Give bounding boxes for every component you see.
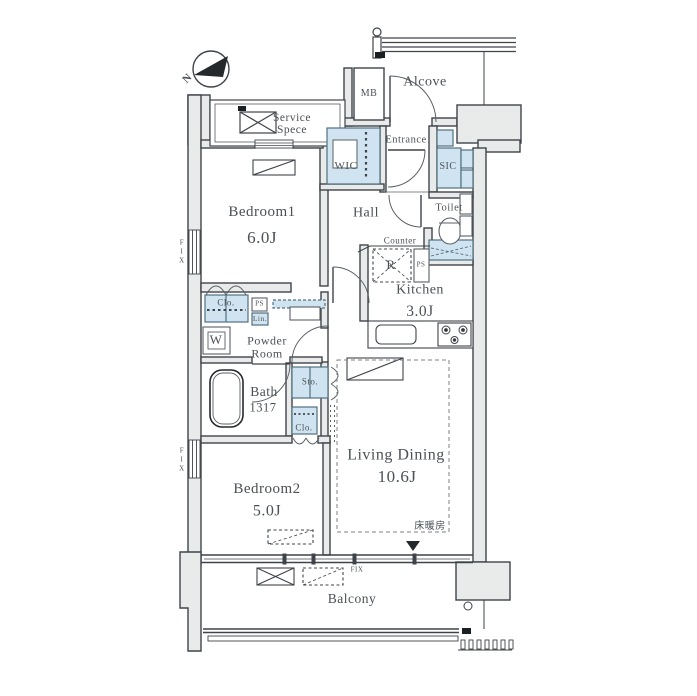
washer-label: W	[210, 333, 223, 347]
corridor-lines	[373, 28, 516, 105]
sto-label: Sto.	[302, 377, 318, 386]
linen-label: Lin.	[253, 315, 267, 323]
toilet-bowl	[439, 218, 461, 244]
bathtub	[210, 370, 243, 427]
balcony-drain-grate	[458, 640, 513, 650]
fridge-label: R	[386, 258, 395, 272]
fix-left-lower-label: FIX	[177, 447, 184, 474]
alcove-label: Alcove	[403, 76, 446, 91]
fix-left-upper-label: FIX	[177, 239, 184, 266]
bedroom1-label: Bedroom1	[228, 205, 295, 221]
entrance-label: Entrance	[385, 134, 426, 145]
service-space-label: Service Spece	[273, 112, 311, 136]
bedroom2-size-label: 5.0J	[253, 504, 281, 521]
bedroom1-size-label: 6.0J	[247, 229, 277, 247]
fix-balcony-label: FIX	[351, 566, 364, 573]
balcony-dashed-box	[303, 568, 343, 585]
service-space-label-line2: Spece	[277, 124, 307, 136]
toilet-label: Toilet	[435, 202, 462, 213]
entrance-door	[384, 150, 429, 192]
balcony-railing	[203, 600, 484, 641]
bath-label: Bath	[250, 385, 278, 399]
living-desk	[347, 358, 403, 380]
closet-upper-label: Clo.	[217, 298, 234, 307]
sic-label: SIC	[439, 162, 456, 173]
kitchen-size-label: 3.0J	[406, 304, 433, 320]
kitchen-sink	[376, 325, 416, 344]
bedroom2-label: Bedroom2	[233, 482, 300, 498]
floor-plan: Service Spece Alcove MB Entrance WIC SIC…	[0, 0, 697, 696]
toilet-door	[389, 195, 421, 227]
hall-label: Hall	[353, 207, 379, 222]
floor-heating-label: 床暖房	[414, 522, 446, 533]
window-marker-icon	[406, 541, 420, 551]
closet-lower-label: Clo.	[295, 423, 312, 432]
service-space-label-line1: Service	[273, 112, 311, 124]
north-compass-icon	[193, 51, 229, 87]
living-dining-label: Living Dining	[347, 448, 445, 465]
kitchen-label: Kitchen	[396, 284, 444, 299]
bedroom1-shelf	[253, 160, 295, 175]
balcony-unit-box	[257, 568, 294, 585]
closet-lower-bifold-door	[293, 438, 319, 444]
powder-room-label: Powder Room	[247, 334, 287, 359]
ps-powder-label: PS	[255, 300, 264, 307]
powder-room-label-line1: Powder	[247, 334, 287, 347]
counter-label: Counter	[384, 236, 417, 245]
bedroom1-top-window	[255, 140, 293, 148]
bedroom2-shelf	[268, 530, 313, 544]
living-dining-size-label: 10.6J	[378, 468, 417, 486]
ps-kitchen-label: PS	[417, 261, 426, 268]
vanity-unit	[290, 307, 320, 320]
fix-window-upper	[189, 230, 200, 274]
south-window-band	[201, 554, 473, 564]
balcony-label: Balcony	[328, 592, 377, 606]
wic-closet	[327, 128, 380, 184]
meter-box-label: MB	[361, 89, 378, 100]
kitchen-counter	[368, 321, 473, 348]
toilet-cabinet	[460, 194, 472, 236]
bedroom2-sliding-door	[331, 405, 335, 443]
bath-size-label: 1317	[250, 401, 277, 414]
powder-room-label-line2: Room	[251, 347, 282, 360]
fix-window-lower	[189, 440, 200, 478]
wic-label: WIC	[335, 161, 358, 173]
